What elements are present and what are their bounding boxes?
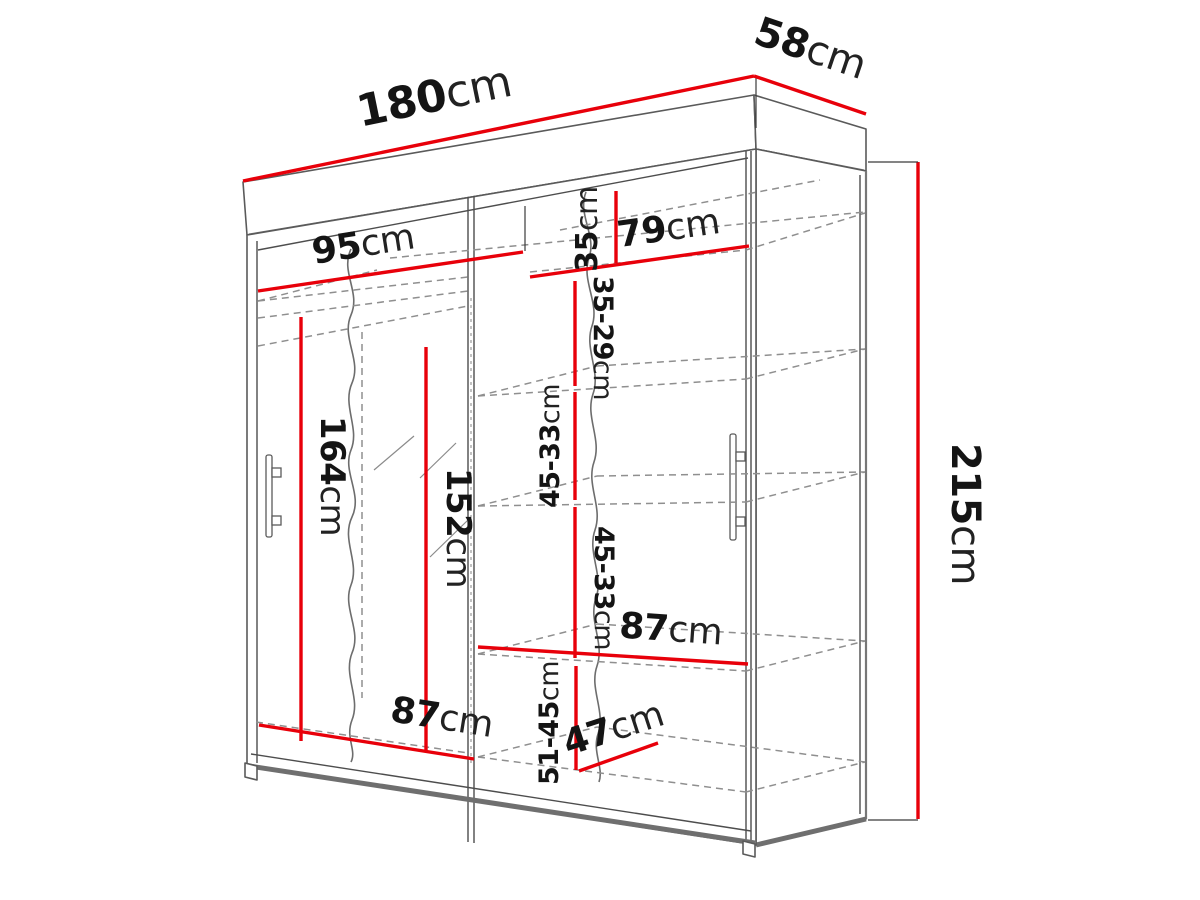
label-mirror-height: 152cm [438,468,478,588]
wardrobe-dimension-diagram: 180cm 58cm 215cm 95cm 79cm 35cm 35-29cm … [0,0,1200,900]
label-hanging-height: 164cm [312,416,352,536]
left-door-handle [266,455,272,537]
right-handle-bracket-top [736,452,745,461]
label-bottom-right-width: 87cm [618,605,724,653]
label-gap-45-33-b: 45-33cm [588,526,619,650]
left-handle-bracket-top [272,468,281,477]
left-foot [245,763,257,780]
left-handle-bracket-bottom [272,516,281,525]
right-door-handle [730,434,736,540]
right-handle-bracket-bottom [736,517,745,526]
label-total-width: 180cm [352,56,515,137]
side-panel [756,149,866,845]
label-top-gap: 35cm [570,186,605,271]
label-gap-51-45: 51-45cm [534,661,565,785]
right-foot [743,841,755,857]
label-gap-45-33-a: 45-33cm [535,384,566,508]
label-total-depth: 58cm [748,9,871,89]
label-total-height: 215cm [942,443,988,585]
diagram-canvas: 180cm 58cm 215cm 95cm 79cm 35cm 35-29cm … [0,0,1200,900]
label-gap-35-29: 35-29cm [587,276,618,400]
